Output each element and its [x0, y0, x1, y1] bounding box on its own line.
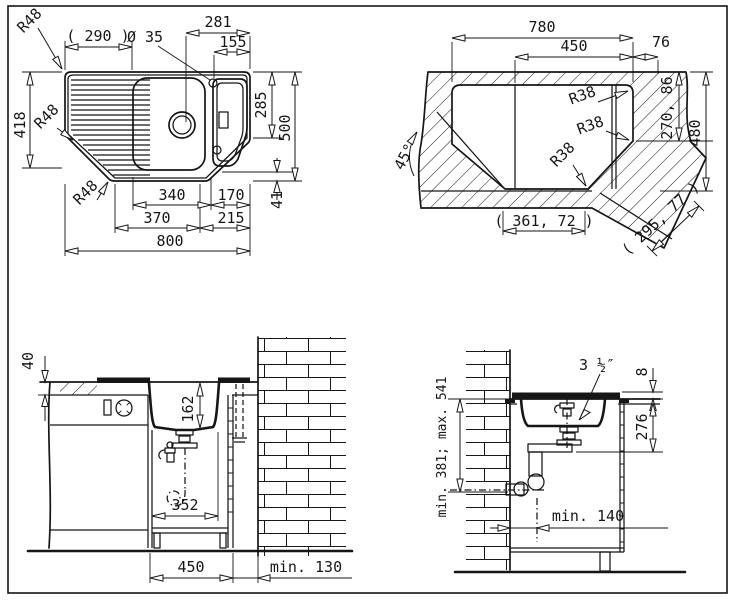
angle-label-45: 45° [390, 140, 419, 172]
dim-label-162: 162 [179, 395, 197, 422]
dim-label-min381-max541: min. 381; max. 541 [435, 377, 450, 518]
plan-labels: ( 290 ) 281 155 Ø 35 R48 R48 R48 418 285… [11, 5, 294, 250]
overflow-hole [219, 112, 228, 128]
drainboard-ribs [71, 80, 150, 175]
front-structure [28, 337, 352, 556]
dim-label-41: 41 [268, 191, 286, 209]
small-bowl [213, 79, 247, 166]
view-front-section: 40 162 352 450 min. 130 [19, 337, 352, 583]
cabinet-leg [220, 533, 226, 548]
dim-label-480: 480 [686, 119, 704, 146]
dim-label-780: 780 [528, 18, 555, 36]
dim-label-290: ( 290 ) [66, 27, 129, 45]
brick-wall [258, 337, 346, 556]
view-sink-plan: ( 290 ) 281 155 Ø 35 R48 R48 R48 418 285… [11, 5, 302, 256]
dim-label-500: 500 [276, 114, 294, 141]
dim-label-450f: 450 [177, 558, 204, 576]
sink-rim [512, 393, 620, 400]
dim-label-270-86: 270, 86 [658, 76, 676, 139]
counter-hatch [60, 383, 97, 395]
sink-rim-left [97, 378, 150, 384]
dim-label-352: 352 [171, 496, 198, 514]
plan-outline [65, 36, 250, 181]
dim-label-r48b: R48 [31, 101, 63, 133]
dim-label-min130: min. 130 [270, 558, 342, 576]
sink-rim-right [218, 378, 250, 384]
drain-inner [173, 116, 191, 134]
dim-label-r38b: R38 [574, 112, 606, 138]
dim-label-800: 800 [156, 232, 183, 250]
cabinet-leg [600, 552, 610, 571]
dim-label-r48c: R48 [70, 177, 102, 209]
dim-label-drain-size: 3 ½″ [579, 356, 615, 374]
dim-label-281: 281 [204, 13, 231, 31]
side-structure [450, 350, 685, 572]
drain-body [560, 427, 578, 432]
view-worktop-cutout: 780 450 76 R38 R38 R38 45° 270, 86 480 (… [390, 18, 713, 259]
cabinet-leg [154, 533, 160, 548]
dim-label-8: 8 [633, 367, 651, 376]
view-side-section: 3 ½″ 8 276 min. 381; max. 541 min. 140 [435, 350, 685, 572]
dim-label-215: 215 [217, 209, 244, 227]
dim-label-418: 418 [11, 111, 29, 138]
dim-label-155: 155 [219, 33, 246, 51]
dim-label-361-72: ( 361, 72 ) [494, 212, 593, 230]
dim-label-40: 40 [19, 352, 37, 370]
control-slot [104, 400, 111, 415]
left-cabinet [50, 395, 148, 548]
dim-label-276: 276 [633, 413, 651, 440]
dim-label-370: 370 [143, 209, 170, 227]
dim-label-450c: 450 [560, 37, 587, 55]
dim-label-min140: min. 140 [552, 507, 624, 525]
drawing-svg: ( 290 ) 281 155 Ø 35 R48 R48 R48 418 285… [0, 0, 735, 600]
cabinet-break-edge [49, 382, 51, 548]
brick-wall [466, 350, 510, 570]
dim-label-170: 170 [217, 186, 244, 204]
dim-label-r38a: R38 [566, 82, 598, 108]
technical-drawing: ( 290 ) 281 155 Ø 35 R48 R48 R48 418 285… [0, 0, 735, 600]
dim-label-340: 340 [158, 186, 185, 204]
dim-label-285: 285 [252, 91, 270, 118]
corner-bowl-drain [236, 384, 243, 438]
dim-label-d35: Ø 35 [127, 28, 163, 46]
drain-flange [172, 443, 197, 448]
dim-label-76: 76 [652, 33, 670, 51]
mounting-clip [505, 399, 515, 403]
